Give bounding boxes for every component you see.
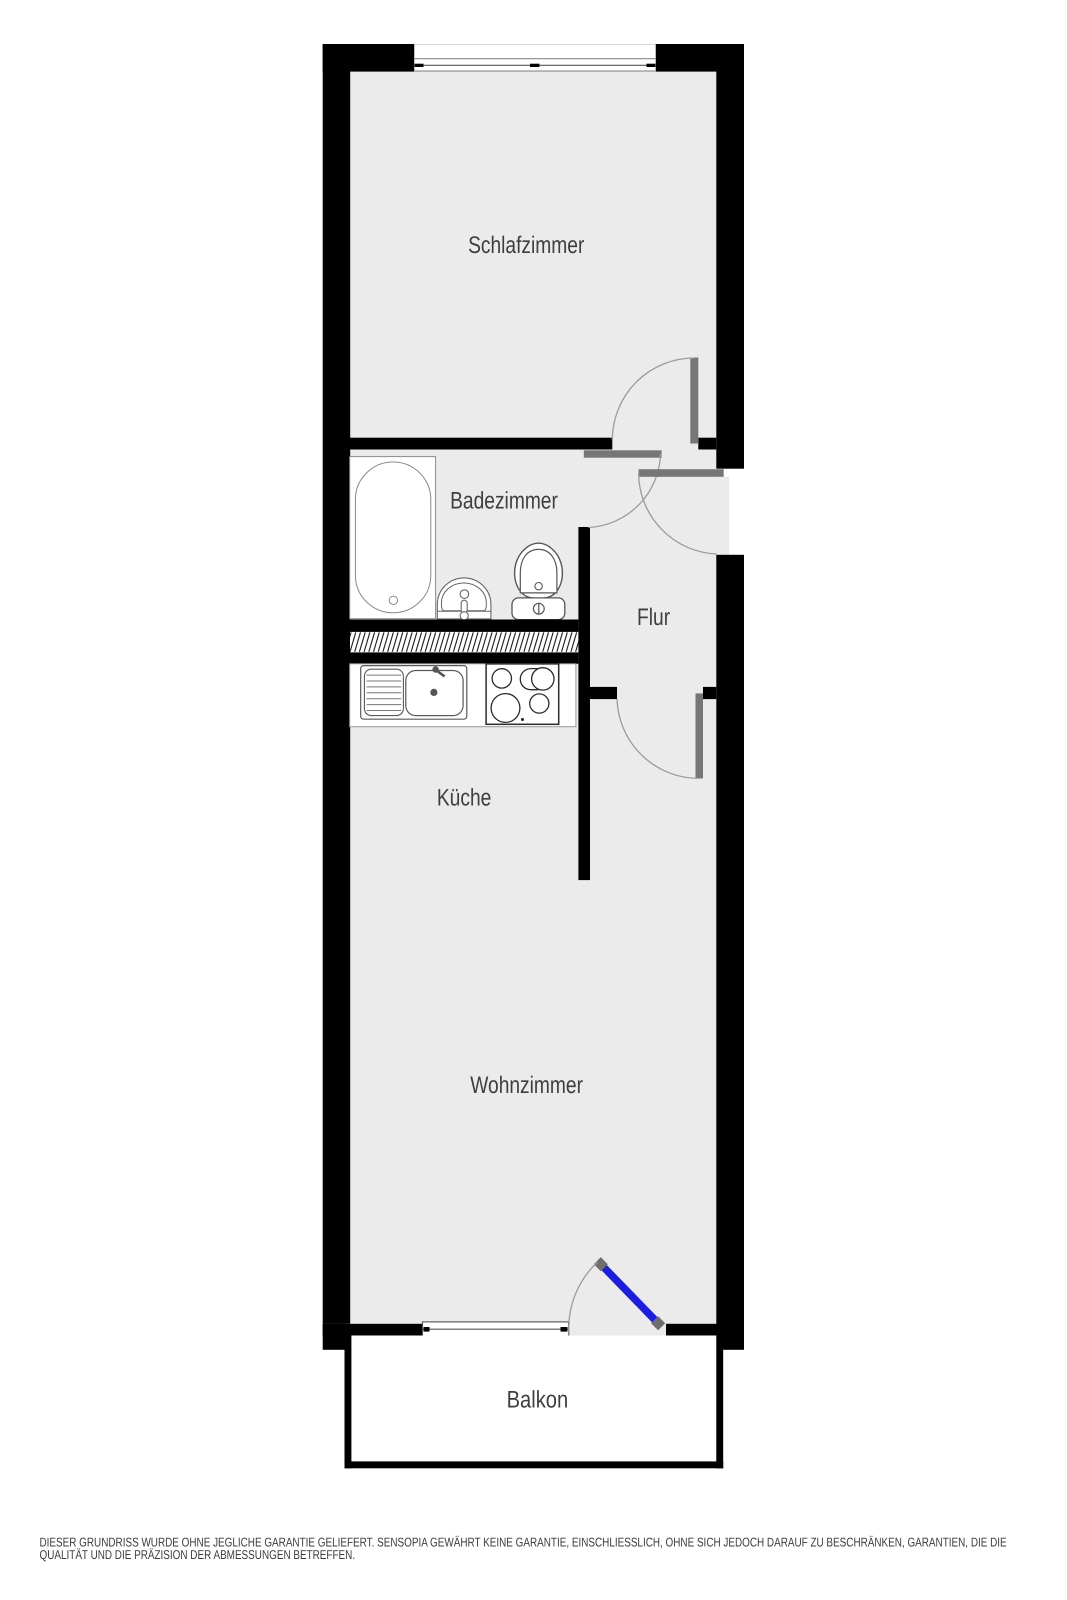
svg-text:Schlafzimmer: Schlafzimmer bbox=[468, 232, 584, 259]
svg-text:Flur: Flur bbox=[637, 604, 670, 631]
svg-text:Wohnzimmer: Wohnzimmer bbox=[470, 1072, 583, 1099]
svg-text:Balkon: Balkon bbox=[507, 1387, 569, 1414]
svg-text:Küche: Küche bbox=[437, 784, 491, 811]
svg-text:QUALITÄT UND DIE PRÄZISION DER: QUALITÄT UND DIE PRÄZISION DER ABMESSUNG… bbox=[40, 1547, 356, 1562]
svg-text:Badezimmer: Badezimmer bbox=[450, 488, 558, 515]
